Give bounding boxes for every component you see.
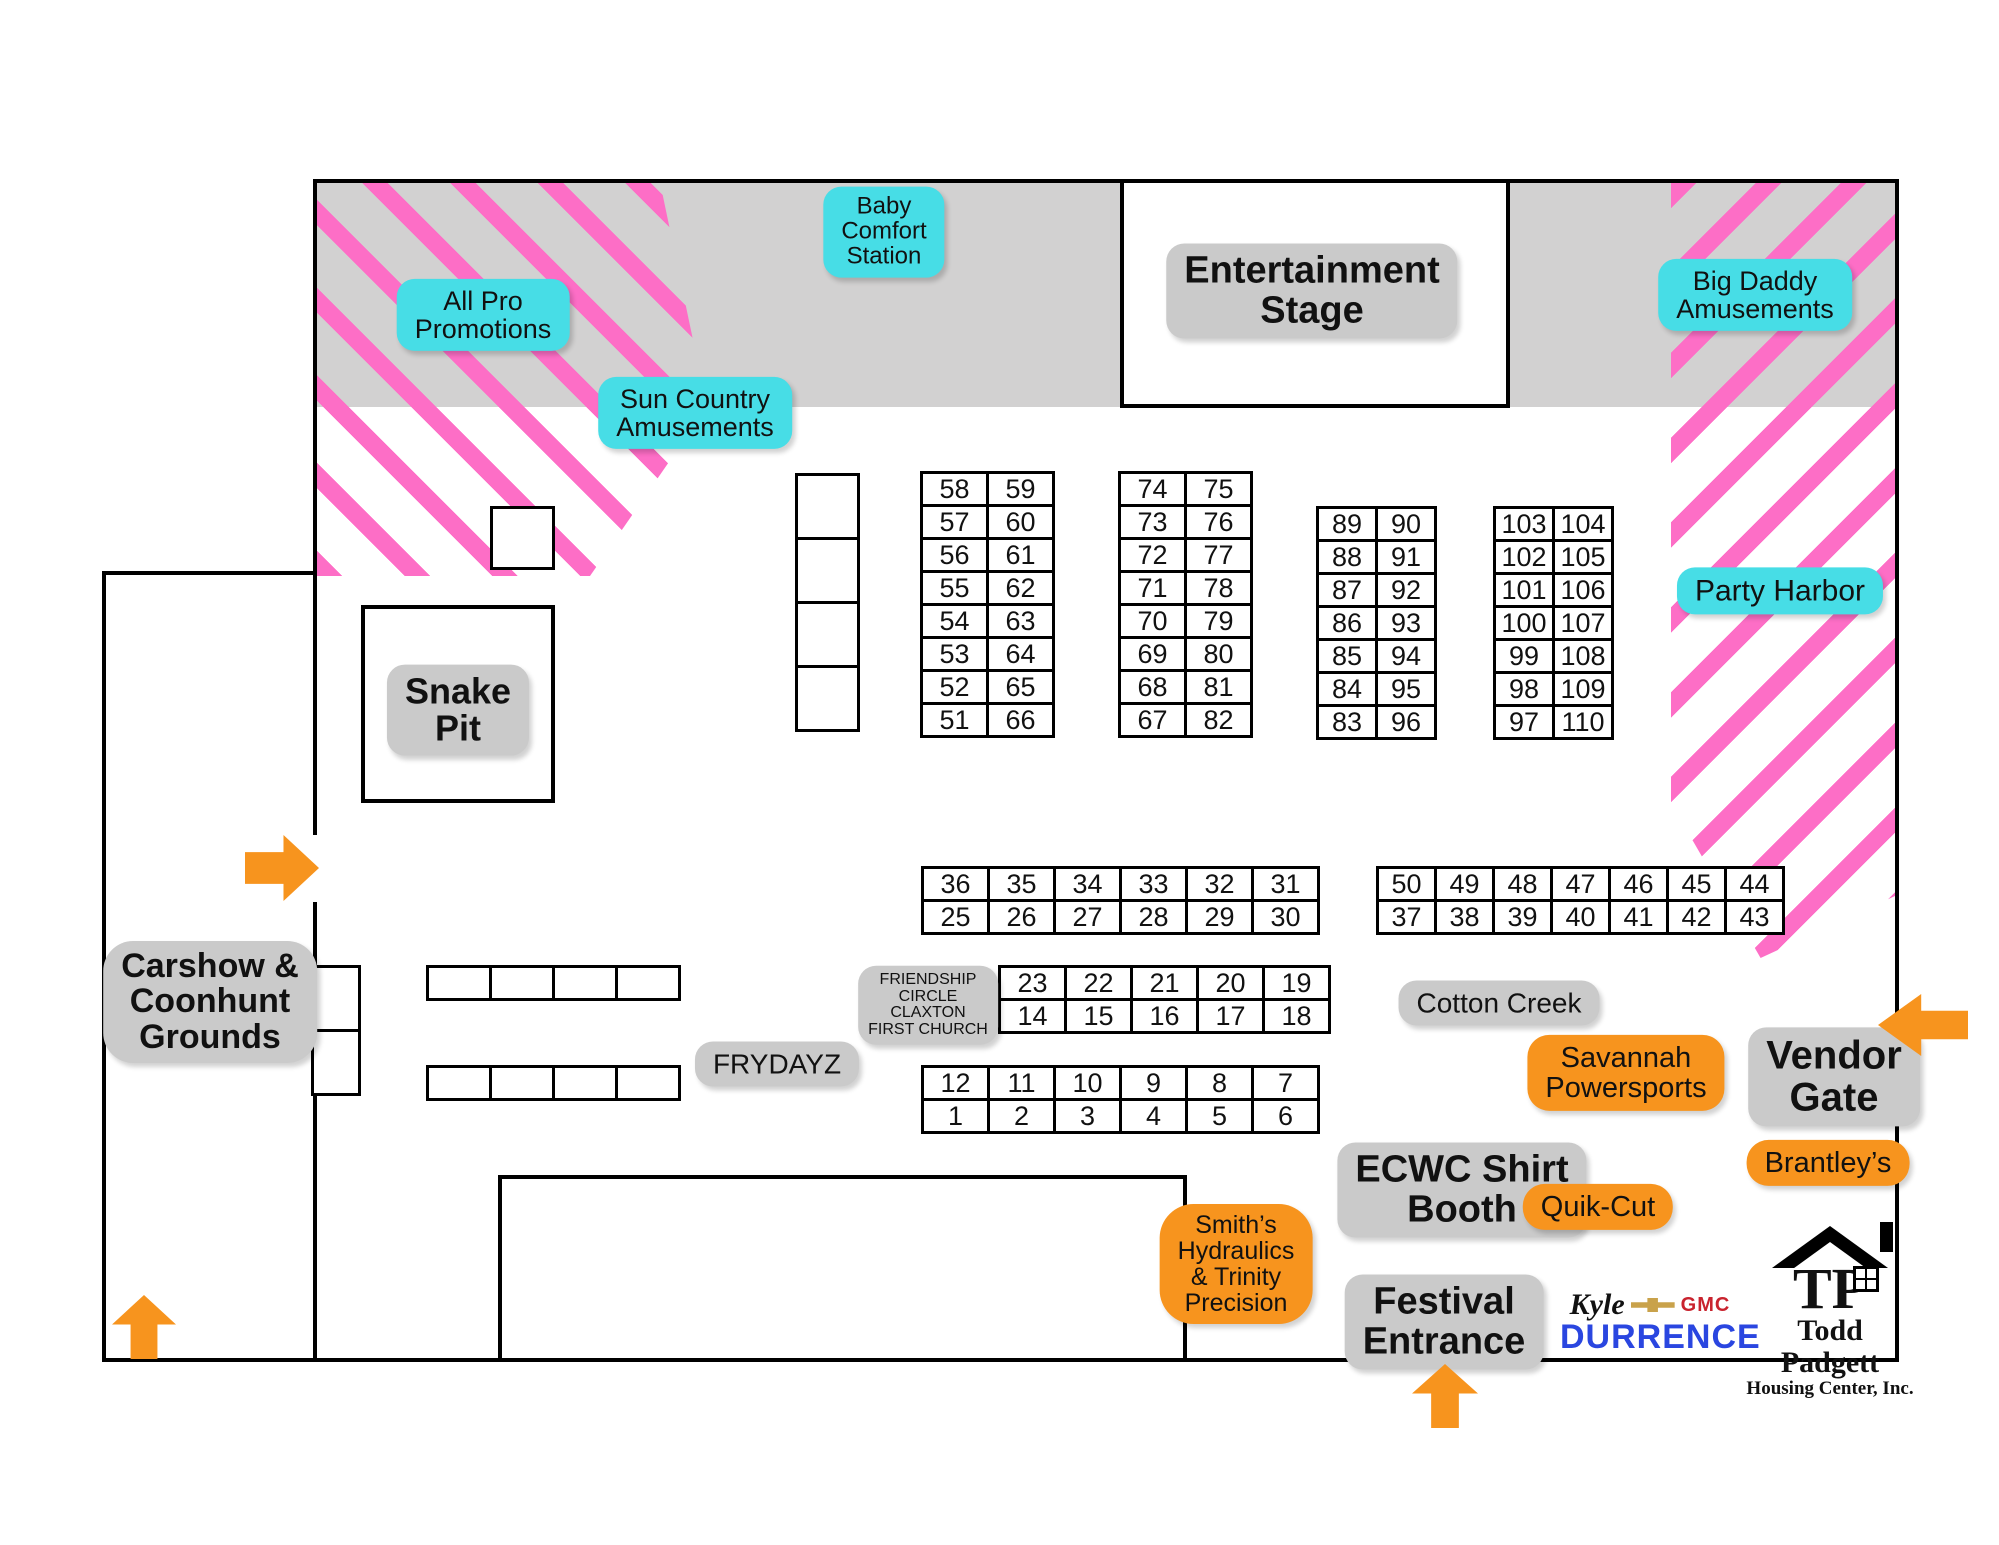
booth-cell-104: 104	[1555, 509, 1611, 539]
booth-grid-83-96: 8990889187928693859484958396	[1316, 506, 1437, 740]
booth-cell-empty	[618, 968, 678, 998]
booth-cell-91: 91	[1378, 542, 1434, 572]
empty-booth-column	[795, 473, 860, 732]
booth-cell-empty	[429, 968, 489, 998]
booth-cell-14: 14	[1001, 1001, 1064, 1031]
booth-cell-9: 9	[1122, 1068, 1185, 1098]
booth-cell-73: 73	[1121, 507, 1184, 537]
booth-cell-34: 34	[1056, 869, 1119, 899]
booth-cell-102: 102	[1496, 542, 1552, 572]
booth-grid-97-110: 103104102105101106100107991089810997110	[1493, 506, 1614, 740]
booth-cell-44: 44	[1727, 869, 1782, 899]
booth-cell-empty	[798, 668, 857, 729]
booth-cell-98: 98	[1496, 674, 1552, 704]
booth-cell-10: 10	[1056, 1068, 1119, 1098]
label-cotton-creek: Cotton Creek	[1399, 980, 1600, 1025]
booth-cell-103: 103	[1496, 509, 1552, 539]
booth-cell-95: 95	[1378, 674, 1434, 704]
booth-cell-11: 11	[990, 1068, 1053, 1098]
booth-cell-101: 101	[1496, 575, 1552, 605]
booth-cell-2: 2	[990, 1101, 1053, 1131]
booth-cell-94: 94	[1378, 641, 1434, 671]
booth-cell-68: 68	[1121, 672, 1184, 702]
booth-cell-45: 45	[1669, 869, 1724, 899]
empty-booth-row-upper	[426, 965, 681, 1001]
booth-cell-55: 55	[923, 573, 986, 603]
booth-cell-99: 99	[1496, 641, 1552, 671]
booth-cell-58: 58	[923, 474, 986, 504]
todd-padgett-name: Todd Padgett	[1745, 1315, 1915, 1378]
booth-cell-106: 106	[1555, 575, 1611, 605]
booth-cell-empty	[555, 1068, 615, 1098]
booth-cell-25: 25	[924, 902, 987, 932]
todd-padgett-subtitle: Housing Center, Inc.	[1745, 1378, 1915, 1400]
booth-grid-37-50: 5049484746454437383940414243	[1376, 866, 1785, 935]
booth-cell-74: 74	[1121, 474, 1184, 504]
booth-cell-87: 87	[1319, 575, 1375, 605]
kyle-script-text: Kyle	[1570, 1288, 1625, 1322]
booth-cell-66: 66	[989, 705, 1052, 735]
booth-cell-88: 88	[1319, 542, 1375, 572]
booth-cell-72: 72	[1121, 540, 1184, 570]
booth-cell-47: 47	[1553, 869, 1608, 899]
zone-label-sun-country: Sun Country Amusements	[598, 377, 792, 449]
booth-cell-78: 78	[1187, 573, 1250, 603]
booth-grid-51-66: 58595760566155625463536452655166	[920, 471, 1055, 738]
arrow-right-carshow-gate-icon	[245, 835, 319, 901]
booth-cell-54: 54	[923, 606, 986, 636]
label-carshow-coonhunt: Carshow & Coonhunt Grounds	[103, 941, 317, 1063]
zone-label-party-harbor: Party Harbor	[1677, 567, 1883, 614]
booth-cell-36: 36	[924, 869, 987, 899]
booth-cell-6: 6	[1254, 1101, 1317, 1131]
booth-cell-37: 37	[1379, 902, 1434, 932]
booth-cell-53: 53	[923, 639, 986, 669]
booth-cell-63: 63	[989, 606, 1052, 636]
booth-cell-75: 75	[1187, 474, 1250, 504]
booth-grid-67-82: 74757376727771787079698068816782	[1118, 471, 1253, 738]
label-festival-entrance: Festival Entrance	[1345, 1274, 1544, 1369]
booth-cell-26: 26	[990, 902, 1053, 932]
label-friendship-circle: FRIENDSHIP CIRCLE CLAXTON FIRST CHURCH	[858, 966, 998, 1045]
empty-booth-row-lower	[426, 1065, 681, 1101]
tp-monogram: TP	[1745, 1264, 1915, 1313]
booth-cell-89: 89	[1319, 509, 1375, 539]
booth-cell-31: 31	[1254, 869, 1317, 899]
arrow-up-carshow-entrance-icon	[112, 1295, 176, 1359]
booth-cell-71: 71	[1121, 573, 1184, 603]
booth-cell-42: 42	[1669, 902, 1724, 932]
booth-cell-70: 70	[1121, 606, 1184, 636]
label-frydayz: FRYDAYZ	[695, 1041, 859, 1086]
booth-cell-empty	[492, 1068, 552, 1098]
booth-cell-39: 39	[1495, 902, 1550, 932]
zone-label-big-daddy: Big Daddy Amusements	[1658, 259, 1852, 331]
booth-cell-27: 27	[1056, 902, 1119, 932]
booth-cell-20: 20	[1199, 968, 1262, 998]
booth-cell-empty	[798, 604, 857, 665]
booth-cell-16: 16	[1133, 1001, 1196, 1031]
map-border-left-upper	[313, 179, 317, 835]
booth-cell-empty	[492, 968, 552, 998]
booth-cell-84: 84	[1319, 674, 1375, 704]
booth-cell-107: 107	[1555, 608, 1611, 638]
arrow-up-festival-entrance-icon	[1412, 1364, 1478, 1428]
booth-cell-41: 41	[1611, 902, 1666, 932]
booth-cell-110: 110	[1555, 707, 1611, 737]
zone-label-all-pro: All Pro Promotions	[397, 279, 570, 351]
label-brantleys: Brantley’s	[1747, 1140, 1910, 1186]
booth-cell-60: 60	[989, 507, 1052, 537]
booth-cell-51: 51	[923, 705, 986, 735]
booth-cell-33: 33	[1122, 869, 1185, 899]
label-savannah-powersports: Savannah Powersports	[1527, 1035, 1724, 1111]
gmc-text: GMC	[1681, 1294, 1731, 1317]
booth-cell-38: 38	[1437, 902, 1492, 932]
booth-cell-empty	[314, 1032, 358, 1093]
booth-cell-32: 32	[1188, 869, 1251, 899]
booth-cell-82: 82	[1187, 705, 1250, 735]
booth-cell-46: 46	[1611, 869, 1666, 899]
house-chimney-icon	[1880, 1222, 1893, 1252]
carshow-border-top	[102, 571, 317, 575]
booth-cell-30: 30	[1254, 902, 1317, 932]
small-utility-box	[490, 506, 555, 570]
booth-cell-empty	[314, 968, 358, 1029]
booth-cell-62: 62	[989, 573, 1052, 603]
booth-cell-22: 22	[1067, 968, 1130, 998]
booth-cell-40: 40	[1553, 902, 1608, 932]
booth-cell-81: 81	[1187, 672, 1250, 702]
booth-cell-5: 5	[1188, 1101, 1251, 1131]
booth-cell-108: 108	[1555, 641, 1611, 671]
house-window-icon	[1853, 1266, 1879, 1292]
booth-cell-empty	[798, 476, 857, 537]
kyle-durrence-logo: Kyle GMC DURRENCE	[1560, 1288, 1740, 1357]
booth-cell-28: 28	[1122, 902, 1185, 932]
booth-cell-15: 15	[1067, 1001, 1130, 1031]
booth-cell-65: 65	[989, 672, 1052, 702]
booth-cell-105: 105	[1555, 542, 1611, 572]
label-snake-pit: Snake Pit	[387, 665, 529, 756]
booth-cell-50: 50	[1379, 869, 1434, 899]
booth-cell-69: 69	[1121, 639, 1184, 669]
booth-cell-61: 61	[989, 540, 1052, 570]
booth-grid-25-36: 363534333231252627282930	[921, 866, 1320, 935]
booth-cell-56: 56	[923, 540, 986, 570]
booth-cell-59: 59	[989, 474, 1052, 504]
booth-cell-83: 83	[1319, 707, 1375, 737]
booth-grid-14-23: 23222120191415161718	[998, 965, 1331, 1034]
booth-cell-4: 4	[1122, 1101, 1185, 1131]
todd-padgett-logo: TP Todd Padgett Housing Center, Inc.	[1745, 1226, 1915, 1400]
booth-cell-85: 85	[1319, 641, 1375, 671]
label-entertainment-stage: Entertainment Stage	[1166, 243, 1457, 338]
booth-cell-64: 64	[989, 639, 1052, 669]
label-quik-cut: Quik-Cut	[1523, 1184, 1673, 1230]
booth-cell-empty	[618, 1068, 678, 1098]
booth-cell-97: 97	[1496, 707, 1552, 737]
booth-cell-93: 93	[1378, 608, 1434, 638]
booth-cell-43: 43	[1727, 902, 1782, 932]
label-vendor-gate: Vendor Gate	[1748, 1027, 1920, 1126]
label-smiths-hydraulics: Smith’s Hydraulics & Trinity Precision	[1160, 1204, 1313, 1324]
booth-cell-96: 96	[1378, 707, 1434, 737]
booth-cell-109: 109	[1555, 674, 1611, 704]
booth-cell-empty	[429, 1068, 489, 1098]
booth-cell-empty	[555, 968, 615, 998]
booth-cell-12: 12	[924, 1068, 987, 1098]
booth-cell-57: 57	[923, 507, 986, 537]
booth-cell-90: 90	[1378, 509, 1434, 539]
booth-cell-76: 76	[1187, 507, 1250, 537]
booth-cell-35: 35	[990, 869, 1053, 899]
booth-cell-100: 100	[1496, 608, 1552, 638]
zone-label-baby-comfort: Baby Comfort Station	[823, 187, 944, 278]
durrence-text: DURRENCE	[1560, 1318, 1740, 1357]
map-border-top	[313, 179, 1899, 183]
booth-cell-29: 29	[1188, 902, 1251, 932]
booth-cell-7: 7	[1254, 1068, 1317, 1098]
booth-cell-19: 19	[1265, 968, 1328, 998]
booth-cell-17: 17	[1199, 1001, 1262, 1031]
chevrolet-bowtie-icon	[1631, 1298, 1675, 1312]
map-border-right	[1895, 179, 1899, 1362]
booth-cell-23: 23	[1001, 968, 1064, 998]
booth-cell-49: 49	[1437, 869, 1492, 899]
booth-cell-80: 80	[1187, 639, 1250, 669]
booth-cell-21: 21	[1133, 968, 1196, 998]
border-attached-boxes	[311, 965, 361, 1096]
booth-cell-86: 86	[1319, 608, 1375, 638]
booth-cell-1: 1	[924, 1101, 987, 1131]
booth-cell-8: 8	[1188, 1068, 1251, 1098]
booth-cell-67: 67	[1121, 705, 1184, 735]
booth-cell-3: 3	[1056, 1101, 1119, 1131]
booth-grid-1-12: 121110987123456	[921, 1065, 1320, 1134]
booth-cell-92: 92	[1378, 575, 1434, 605]
booth-cell-empty	[798, 540, 857, 601]
booth-cell-77: 77	[1187, 540, 1250, 570]
booth-cell-79: 79	[1187, 606, 1250, 636]
bottom-building-box	[498, 1175, 1187, 1362]
booth-cell-48: 48	[1495, 869, 1550, 899]
booth-cell-52: 52	[923, 672, 986, 702]
booth-cell-18: 18	[1265, 1001, 1328, 1031]
